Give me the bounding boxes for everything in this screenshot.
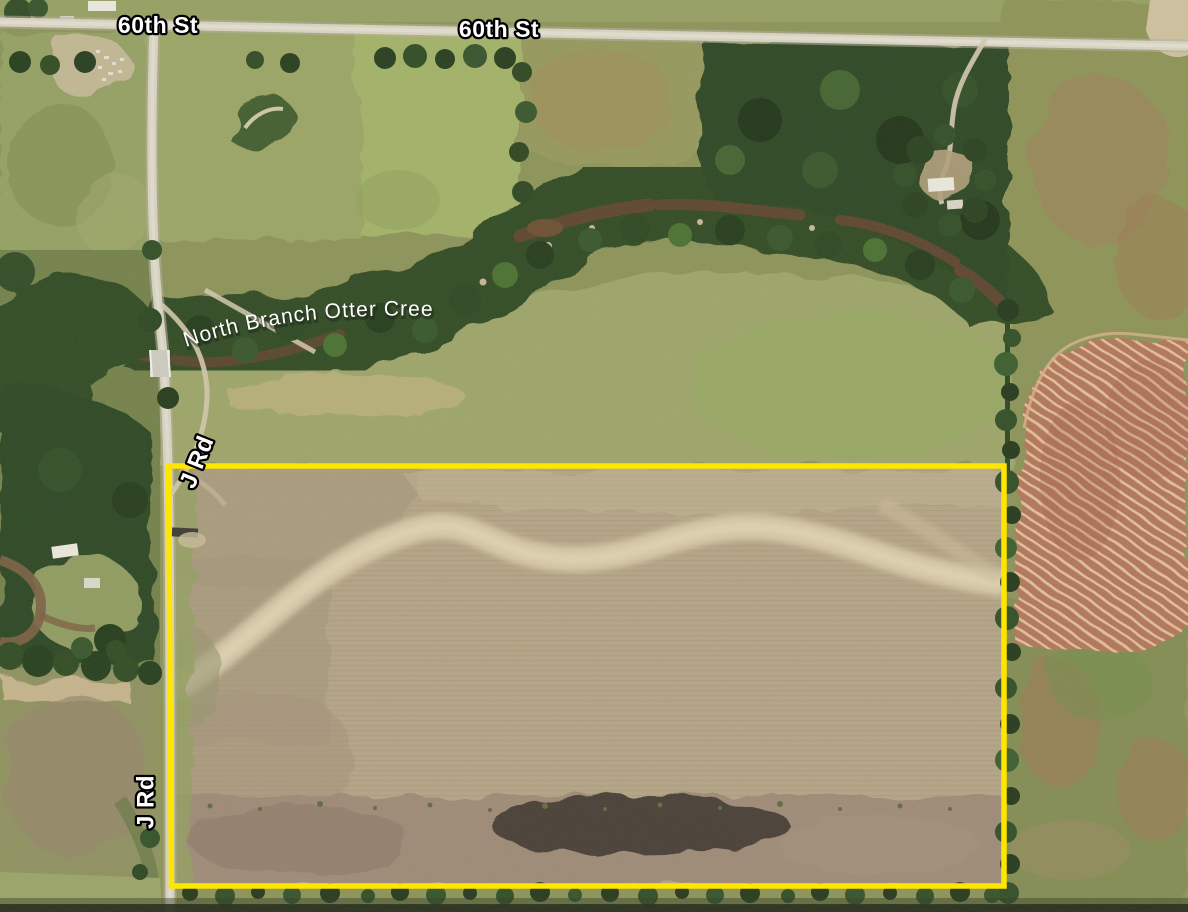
road-label-j-rd-lower: J Rd [133, 775, 160, 829]
road-label-60th-st-west: 60th St [118, 12, 198, 38]
satellite-imagery: 60th St 60th St J Rd J Rd North Branch O… [0, 0, 1188, 912]
image-grain [0, 0, 1188, 912]
road-label-60th-st-center: 60th St [459, 16, 539, 42]
aerial-map: 60th St 60th St J Rd J Rd North Branch O… [0, 0, 1188, 912]
